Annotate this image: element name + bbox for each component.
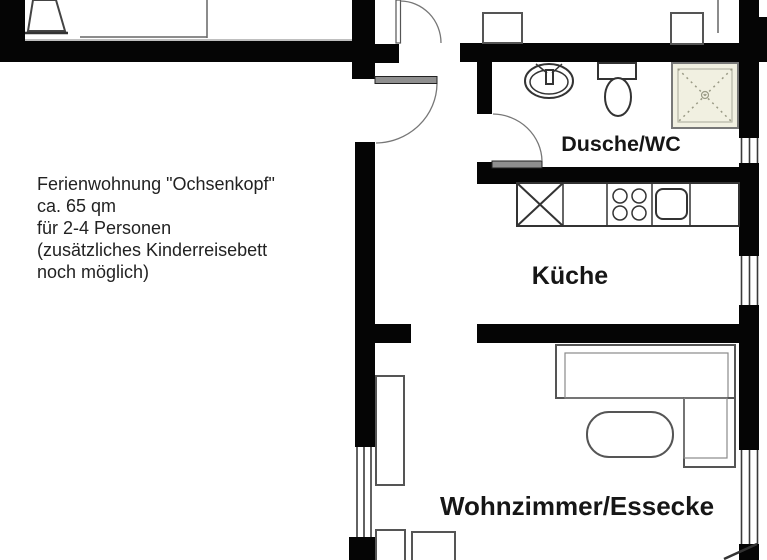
chair	[412, 532, 455, 560]
door-leaf	[396, 0, 401, 43]
kitchen-counter	[517, 183, 739, 226]
door-leaf	[375, 77, 437, 84]
wall-hall-top-vertical	[352, 0, 375, 79]
room-label-living: Wohnzimmer/Essecke	[440, 491, 714, 521]
floor-plan-svg: Dusche/WC Küche Wohnzimmer/Essecke Ferie…	[0, 0, 767, 560]
door-swing-arc	[493, 114, 542, 161]
door-swing-arc	[401, 1, 442, 43]
door-top-room	[396, 0, 441, 43]
wall-stub-top-middle	[375, 44, 399, 63]
washbasin-icon	[525, 64, 573, 98]
wall-outer-right-mid	[739, 163, 759, 256]
door-leaf	[492, 161, 542, 168]
chair	[376, 530, 405, 560]
apartment-annotation: Ferienwohnung "Ochsenkopf" ca. 65 qm für…	[37, 174, 275, 282]
window-living-left	[357, 447, 371, 537]
wall-topleft-room-bottom	[0, 41, 353, 62]
wall-bathroom-bottom	[477, 167, 740, 184]
wall-hall-living-left	[355, 142, 375, 447]
annotation-line-4: (zusätzliches Kinderreisebett	[37, 240, 267, 260]
wall-left-bottom-corner	[349, 537, 375, 560]
annotation-line-3: für 2-4 Personen	[37, 218, 171, 238]
annotation-line-2: ca. 65 qm	[37, 196, 116, 216]
wall-outer-right-lower	[739, 305, 759, 450]
window-bathroom-right	[742, 138, 758, 163]
bathroom-fixtures	[525, 63, 738, 128]
room-label-bathroom: Dusche/WC	[561, 132, 680, 156]
toilet-icon	[598, 63, 636, 116]
shower-tray-icon	[672, 63, 738, 128]
window-kitchen-right	[742, 256, 758, 305]
wall-living-top-stub	[375, 324, 411, 343]
toilet-cistern	[598, 63, 636, 79]
kitchen-fixtures	[517, 183, 739, 226]
floor-plan-page: Dusche/WC Küche Wohnzimmer/Essecke Ferie…	[0, 0, 767, 560]
wall-kitchen-living	[477, 324, 739, 343]
nightstand	[671, 13, 703, 44]
shelf	[376, 376, 404, 485]
wall-topright-rooms-bottom	[460, 43, 740, 62]
door-bathroom	[492, 114, 542, 168]
kitchen-sink-icon	[656, 189, 687, 219]
room-label-kitchen: Küche	[532, 262, 609, 290]
wall-bathroom-left	[477, 62, 492, 114]
toilet-bowl	[605, 78, 631, 116]
tiled-stove	[28, 0, 65, 31]
dining-table	[587, 412, 673, 457]
wall-outer-right-step	[755, 17, 767, 62]
annotation-line-1: Ferienwohnung "Ochsenkopf"	[37, 174, 275, 194]
annotation-line-5: noch möglich)	[37, 262, 149, 282]
living-room-furniture	[376, 345, 735, 560]
door-swing-arc	[376, 84, 437, 143]
nightstand	[483, 13, 522, 43]
window-living-right	[742, 450, 758, 544]
door-hallway	[375, 77, 437, 144]
